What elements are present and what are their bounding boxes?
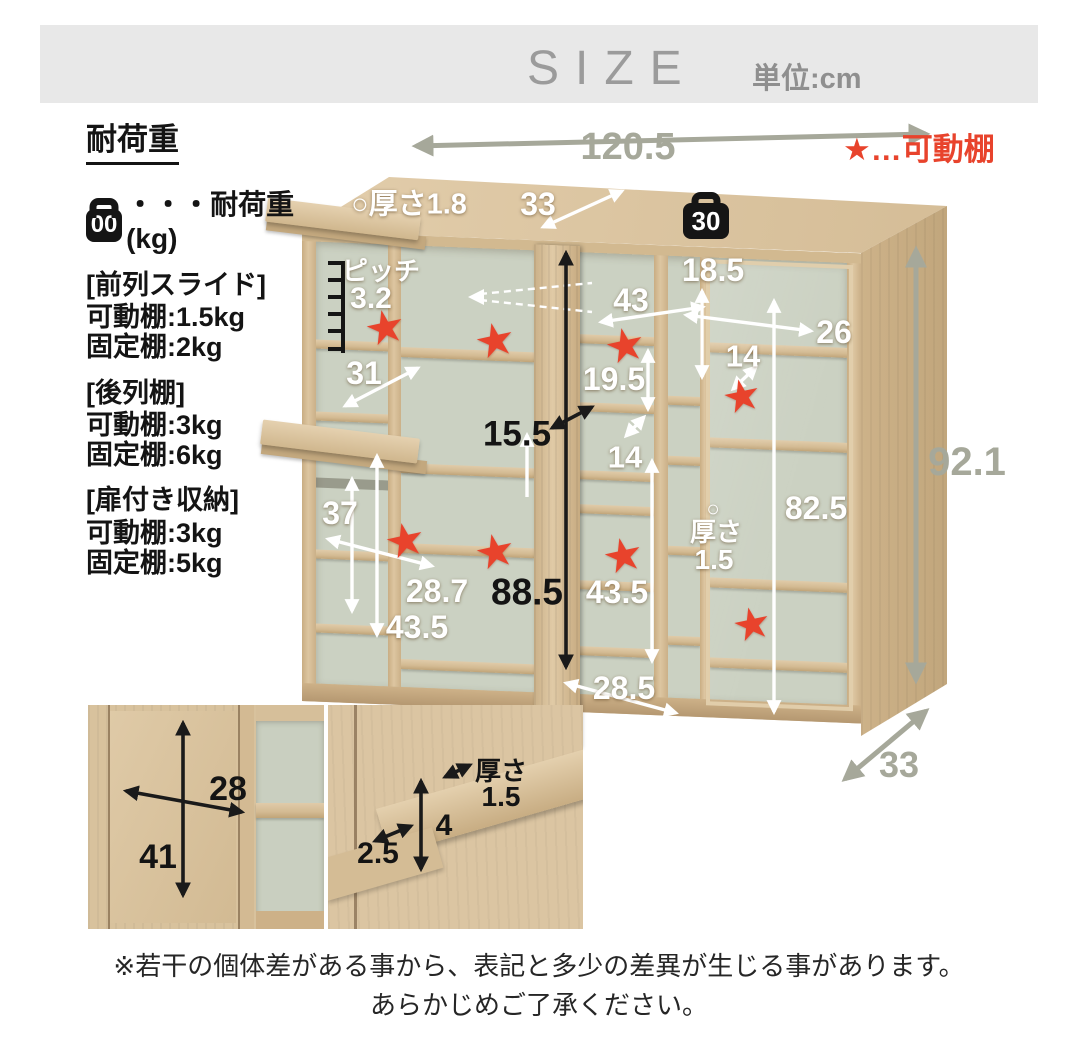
shelf: [256, 803, 324, 818]
shelf: [668, 456, 700, 466]
dim-right-top-h: 18.5: [682, 254, 744, 286]
dim-left-low: 37: [322, 497, 358, 529]
dim-mid-gap: 14: [608, 442, 642, 473]
dim-lip-h: 4: [436, 811, 453, 841]
dim-pitch-label: ピッチ: [342, 258, 420, 284]
door-stile: [240, 705, 254, 929]
dim-width: 120.5: [580, 128, 675, 166]
dim-door-w: 28: [209, 772, 247, 806]
load-capacity-heading: 耐荷重: [86, 114, 179, 165]
load-group-back-shelf: [後列棚] 可動棚:3kg 固定棚:6kg: [86, 378, 306, 471]
shelf: [668, 636, 700, 646]
size-chart-page: SIZE 単位:cm 耐荷重 00 ・・・耐荷重(kg) [前列スライド] 可動…: [0, 0, 1078, 1050]
load-group-line: 固定棚:2kg: [86, 332, 306, 362]
shelf-edge-detail-photo: [328, 705, 583, 929]
shelf: [668, 396, 700, 406]
dim-thick-value: 1.5: [695, 546, 734, 574]
weight-icon: 00: [86, 209, 122, 242]
load-group-name: [前列スライド]: [86, 270, 306, 300]
dim-right-h: 82.5: [785, 492, 847, 524]
movable-shelf-legend: ★…可動棚: [843, 124, 995, 169]
load-group-line: 固定棚:5kg: [86, 548, 306, 578]
disclaimer-line-1: ※若干の個体差がある事から、表記と多少の差異が生じる事があります。: [0, 946, 1078, 983]
dim-mid-cell: 19.5: [583, 363, 645, 395]
dim-right-w: 26: [816, 316, 852, 348]
weight-badge: 30: [683, 203, 729, 239]
weight-badge-value: 30: [692, 206, 721, 237]
dim-height: 92.1: [928, 442, 1006, 482]
dim-left-h: 43.5: [386, 611, 448, 643]
size-title: SIZE: [527, 41, 698, 96]
disclaimer-line-2: あらかじめご了承ください。: [0, 985, 1078, 1022]
dim-thick-label: 厚さ: [690, 519, 742, 545]
dim-lip-thick-value: 1.5: [482, 783, 521, 811]
load-group-line: 可動棚:3kg: [86, 518, 306, 548]
dim-top-depth: 33: [520, 188, 556, 220]
unit-label: 単位:cm: [752, 55, 862, 97]
panel-seam: [354, 705, 357, 929]
dim-slide-depth: 28.7: [406, 575, 468, 607]
dim-left-cell: 31: [346, 357, 382, 389]
dim-mid-h: 43.5: [586, 576, 648, 608]
load-group-line: 可動棚:3kg: [86, 410, 306, 440]
load-group-door-storage: [扉付き収納] 可動棚:3kg 固定棚:5kg: [86, 485, 306, 578]
dim-pitch-value: 3.2: [350, 284, 392, 314]
dim-top-thickness: ○厚さ1.8: [351, 191, 467, 220]
load-group-front-slide: [前列スライド] 可動棚:1.5kg 固定棚:2kg: [86, 270, 306, 363]
load-group-line: 固定棚:6kg: [86, 440, 306, 470]
dim-slide-w: 28.5: [593, 672, 655, 704]
cabinet-divider: [654, 255, 668, 698]
load-group-name: [後列棚]: [86, 378, 306, 408]
door-panel: [110, 711, 236, 923]
dim-back-h: 88.5: [491, 574, 563, 611]
weight-icon-desc: ・・・耐荷重(kg): [126, 183, 306, 255]
load-group-name: [扉付き収納]: [86, 485, 306, 515]
dim-depth: 33: [879, 747, 919, 783]
dim-slide-clear: 15.5: [483, 417, 551, 452]
weight-icon-label: 00: [91, 211, 118, 239]
load-capacity-panel: 耐荷重 00 ・・・耐荷重(kg) [前列スライド] 可動棚:1.5kg 固定棚…: [86, 114, 306, 578]
dim-mid-w: 43: [613, 284, 649, 316]
size-header-bar: SIZE 単位:cm: [40, 25, 1038, 103]
dim-door-h: 41: [139, 840, 177, 874]
dim-lip-d: 2.5: [357, 839, 399, 869]
dim-right-gap: 14: [726, 341, 760, 372]
load-capacity-legend: 00 ・・・耐荷重(kg): [86, 183, 306, 255]
load-group-line: 可動棚:1.5kg: [86, 302, 306, 332]
open-cell-rail: [256, 911, 324, 929]
open-cell-rail: [256, 705, 324, 721]
door-detail-photo: [88, 705, 324, 929]
sliding-panel: [534, 244, 580, 748]
